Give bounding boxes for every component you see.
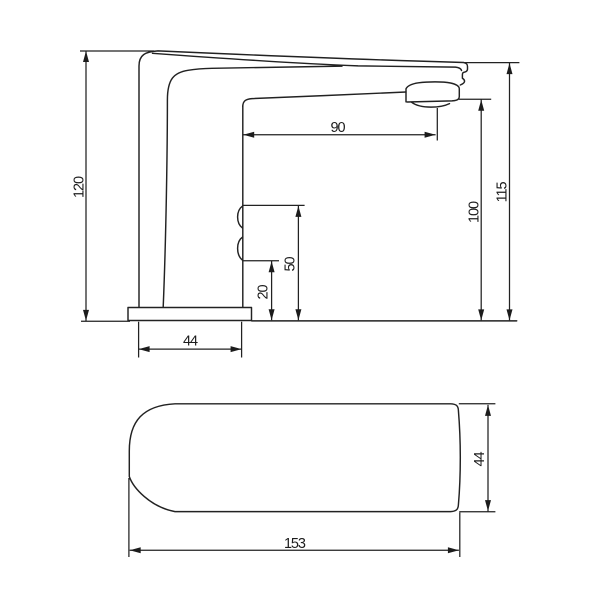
svg-text:20: 20 <box>256 285 272 300</box>
svg-text:120: 120 <box>72 176 88 198</box>
svg-text:100: 100 <box>467 201 483 223</box>
svg-text:153: 153 <box>284 536 306 552</box>
svg-text:90: 90 <box>331 120 346 136</box>
svg-text:50: 50 <box>283 257 299 272</box>
svg-text:44: 44 <box>183 334 198 350</box>
svg-text:44: 44 <box>472 452 488 467</box>
svg-text:115: 115 <box>495 182 511 203</box>
